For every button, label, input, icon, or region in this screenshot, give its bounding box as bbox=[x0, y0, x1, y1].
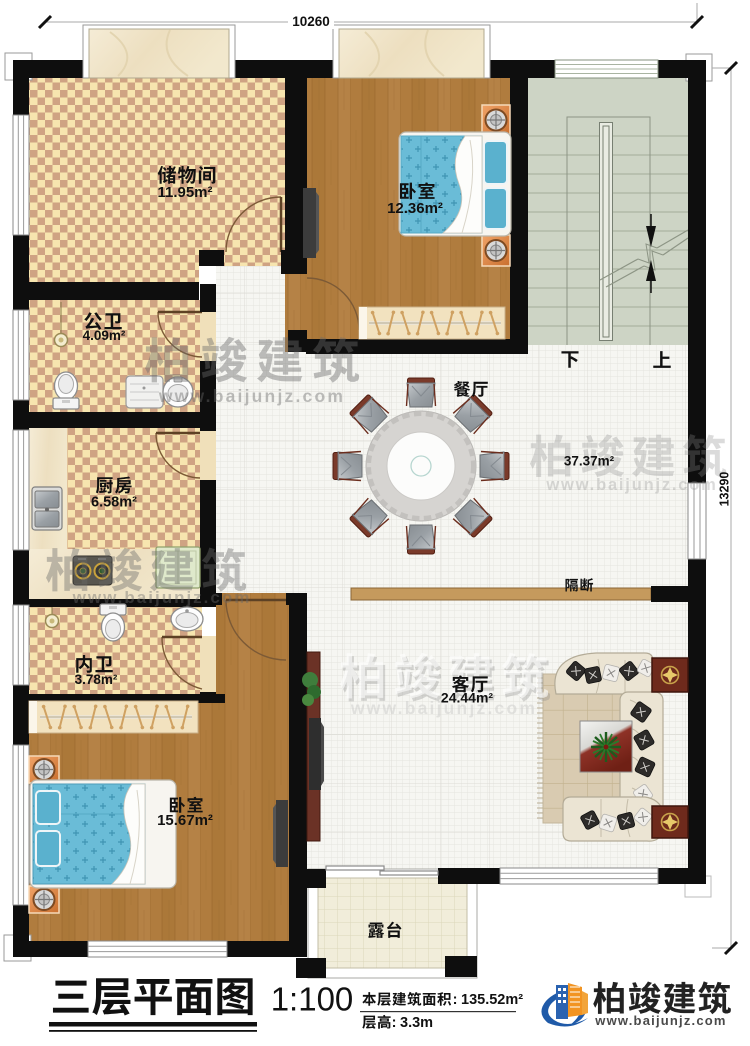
svg-text:37.37m²: 37.37m² bbox=[564, 454, 615, 469]
svg-text::: : bbox=[392, 1015, 397, 1031]
svg-text:1:100: 1:100 bbox=[271, 981, 354, 1018]
svg-text:www.baijunjz.com: www.baijunjz.com bbox=[545, 476, 717, 494]
svg-text:11.95m²: 11.95m² bbox=[157, 184, 212, 201]
svg-text::: : bbox=[453, 992, 458, 1008]
svg-text:4.09m²: 4.09m² bbox=[83, 328, 126, 343]
svg-text:3.78m²: 3.78m² bbox=[75, 672, 118, 687]
svg-text:15.67m²: 15.67m² bbox=[157, 812, 213, 829]
svg-text:12.36m²: 12.36m² bbox=[387, 200, 443, 217]
svg-text:24.44m²: 24.44m² bbox=[441, 689, 493, 705]
svg-text:3.3m: 3.3m bbox=[400, 1015, 433, 1031]
svg-text:6.58m²: 6.58m² bbox=[91, 495, 137, 511]
svg-text:10260: 10260 bbox=[292, 14, 330, 29]
svg-text:www.baijunjz.com: www.baijunjz.com bbox=[158, 386, 345, 406]
svg-text:www.baijunjz.com: www.baijunjz.com bbox=[72, 588, 252, 607]
svg-text:135.52m²: 135.52m² bbox=[461, 992, 523, 1008]
svg-text:www.baijunjz.com: www.baijunjz.com bbox=[594, 1013, 726, 1028]
svg-text:13290: 13290 bbox=[717, 472, 731, 507]
